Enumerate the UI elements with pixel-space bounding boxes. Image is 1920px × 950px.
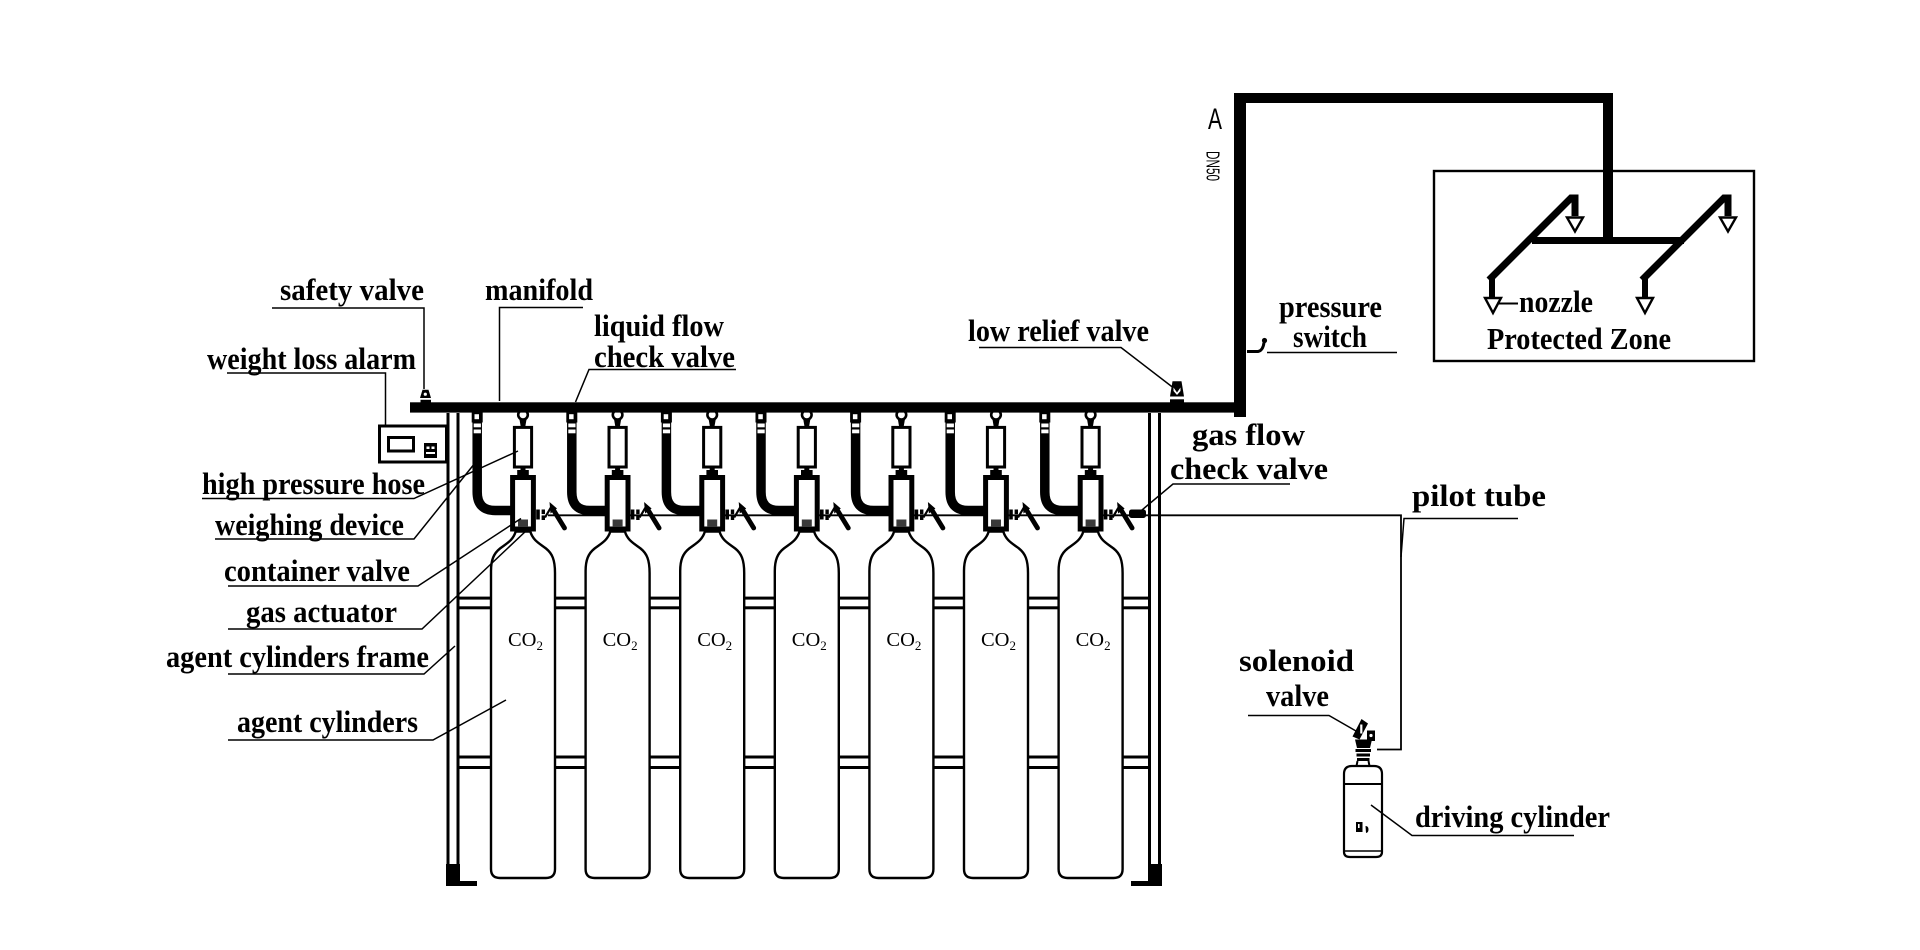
svg-text:manifold: manifold bbox=[485, 272, 593, 307]
svg-text:container valve: container valve bbox=[224, 553, 410, 588]
svg-text:switch: switch bbox=[1293, 319, 1367, 354]
svg-text:agent cylinders: agent cylinders bbox=[237, 704, 418, 739]
svg-text:weight loss alarm: weight loss alarm bbox=[207, 341, 416, 376]
svg-text:high pressure hose: high pressure hose bbox=[202, 466, 425, 501]
svg-text:pilot tube: pilot tube bbox=[1412, 478, 1546, 513]
svg-text:valve: valve bbox=[1266, 678, 1329, 713]
svg-text:liquid flow: liquid flow bbox=[594, 308, 725, 343]
svg-text:gas actuator: gas actuator bbox=[246, 594, 397, 629]
svg-text:driving cylinder: driving cylinder bbox=[1415, 799, 1610, 834]
svg-text:gas flow: gas flow bbox=[1192, 417, 1306, 452]
svg-text:low relief valve: low relief valve bbox=[968, 313, 1149, 348]
svg-text:DN50: DN50 bbox=[1203, 151, 1223, 181]
svg-text:Protected Zone: Protected Zone bbox=[1487, 321, 1671, 356]
svg-text:solenoid: solenoid bbox=[1239, 643, 1354, 678]
svg-text:weighing device: weighing device bbox=[215, 507, 404, 542]
svg-text:agent cylinders frame: agent cylinders frame bbox=[166, 639, 429, 674]
svg-text:check valve: check valve bbox=[1170, 451, 1328, 486]
svg-text:nozzle: nozzle bbox=[1519, 284, 1593, 319]
svg-text:safety valve: safety valve bbox=[280, 272, 424, 307]
svg-text:A: A bbox=[1208, 103, 1222, 136]
